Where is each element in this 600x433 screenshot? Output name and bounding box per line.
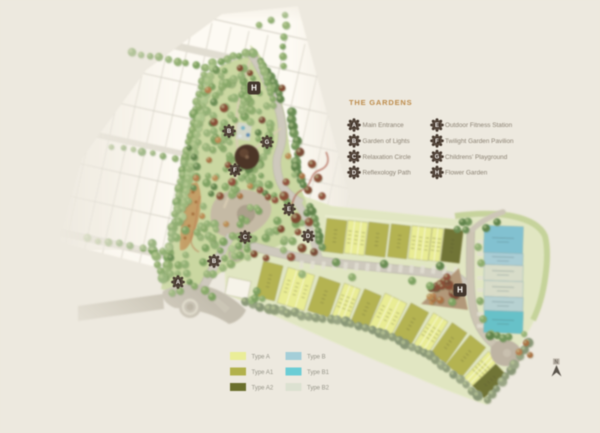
svg-text:G: G xyxy=(265,140,270,146)
svg-text:THE GARDENS: THE GARDENS xyxy=(349,98,412,107)
svg-text:A: A xyxy=(352,123,357,129)
svg-text:D: D xyxy=(352,171,357,177)
svg-text:B: B xyxy=(227,129,232,135)
svg-text:Outdoor Fitness Station: Outdoor Fitness Station xyxy=(445,122,513,129)
svg-text:F: F xyxy=(435,139,439,145)
svg-text:N: N xyxy=(554,360,558,366)
svg-text:H: H xyxy=(251,84,257,93)
svg-text:B: B xyxy=(352,139,357,145)
svg-text:Type B2: Type B2 xyxy=(307,386,330,392)
svg-text:Flower Garden: Flower Garden xyxy=(445,170,488,177)
svg-text:E: E xyxy=(435,123,439,129)
svg-text:D: D xyxy=(306,234,311,240)
svg-text:H: H xyxy=(457,286,463,295)
svg-text:G: G xyxy=(435,155,440,161)
svg-text:Reflexology Path: Reflexology Path xyxy=(363,170,412,177)
svg-text:B: B xyxy=(212,259,217,265)
svg-text:F: F xyxy=(233,168,237,174)
svg-text:C: C xyxy=(243,235,248,241)
svg-text:Type A1: Type A1 xyxy=(252,370,274,376)
svg-text:Garden of Lights: Garden of Lights xyxy=(363,138,410,145)
svg-text:E: E xyxy=(287,207,291,213)
svg-text:Childrens’ Playground: Childrens’ Playground xyxy=(445,154,508,161)
svg-text:Type B: Type B xyxy=(307,355,326,361)
svg-text:Type B1: Type B1 xyxy=(307,370,330,376)
svg-text:Relaxation Circle: Relaxation Circle xyxy=(363,154,412,161)
svg-text:Main Entrance: Main Entrance xyxy=(363,122,405,129)
svg-text:A: A xyxy=(176,280,181,286)
svg-text:H: H xyxy=(435,171,439,177)
svg-text:Twilight Garden Pavilion: Twilight Garden Pavilion xyxy=(445,138,514,145)
svg-text:Type A: Type A xyxy=(252,355,270,361)
svg-text:Type A2: Type A2 xyxy=(252,386,274,392)
svg-text:C: C xyxy=(352,155,357,161)
